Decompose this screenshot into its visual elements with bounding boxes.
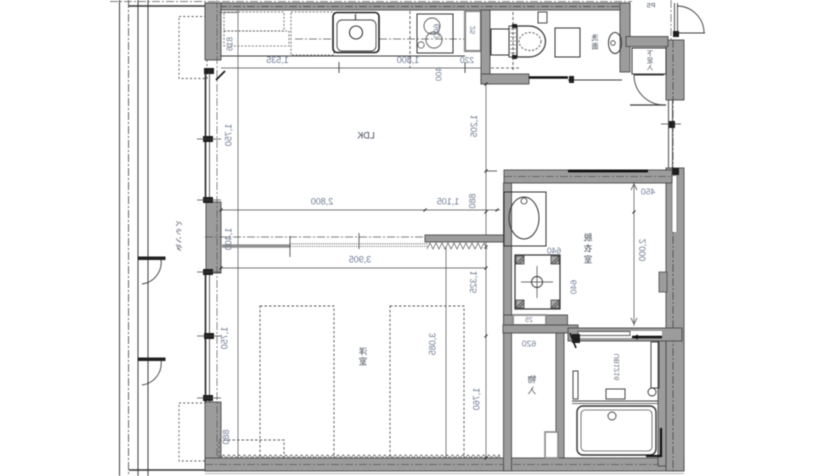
svg-text:25: 25 (525, 317, 533, 324)
svg-text:入: 入 (527, 385, 536, 395)
svg-text:2,000: 2,000 (637, 239, 647, 262)
svg-text:2,800: 2,800 (311, 196, 334, 206)
svg-text:640: 640 (547, 245, 561, 255)
svg-text:足: 足 (646, 57, 653, 65)
svg-text:400: 400 (433, 67, 443, 81)
svg-text:600: 600 (431, 24, 441, 38)
svg-text:1,535: 1,535 (266, 55, 289, 65)
svg-text:面: 面 (592, 42, 599, 50)
svg-text:室: 室 (583, 254, 592, 264)
svg-text:3,085: 3,085 (427, 333, 437, 356)
svg-text:脱: 脱 (583, 232, 592, 242)
svg-text:ベ: ベ (176, 220, 183, 228)
svg-text:640: 640 (568, 280, 578, 294)
svg-text:ダ: ダ (176, 243, 183, 252)
svg-text:ン: ン (176, 237, 183, 244)
svg-text:880: 880 (221, 429, 231, 444)
svg-text:220: 220 (460, 55, 474, 65)
svg-text:洗: 洗 (592, 33, 599, 42)
svg-text:1,400: 1,400 (223, 228, 233, 251)
svg-text:1,750: 1,750 (219, 327, 229, 350)
svg-text:下: 下 (646, 50, 653, 58)
svg-text:PS: PS (646, 3, 655, 10)
svg-text:816: 816 (224, 37, 234, 51)
svg-text:入: 入 (646, 65, 653, 72)
svg-text:450: 450 (641, 186, 655, 196)
svg-text:1,105: 1,105 (437, 196, 460, 206)
svg-text:1,325: 1,325 (468, 271, 478, 294)
svg-text:物: 物 (527, 374, 536, 384)
svg-text:1,205: 1,205 (469, 115, 479, 138)
svg-text:3,905: 3,905 (349, 254, 372, 264)
svg-text:620: 620 (522, 338, 536, 348)
svg-text:LDK: LDK (357, 130, 375, 140)
svg-text:1,750: 1,750 (223, 124, 233, 147)
svg-text:1,760: 1,760 (471, 388, 481, 411)
svg-text:洋: 洋 (358, 346, 367, 356)
svg-text:25: 25 (468, 26, 477, 34)
svg-text:ラ: ラ (176, 228, 183, 236)
svg-text:UB1216: UB1216 (612, 353, 621, 380)
svg-text:衣: 衣 (583, 243, 592, 253)
svg-text:室: 室 (358, 356, 367, 366)
svg-text:880: 880 (467, 193, 477, 208)
svg-text:1,800: 1,800 (397, 55, 420, 65)
